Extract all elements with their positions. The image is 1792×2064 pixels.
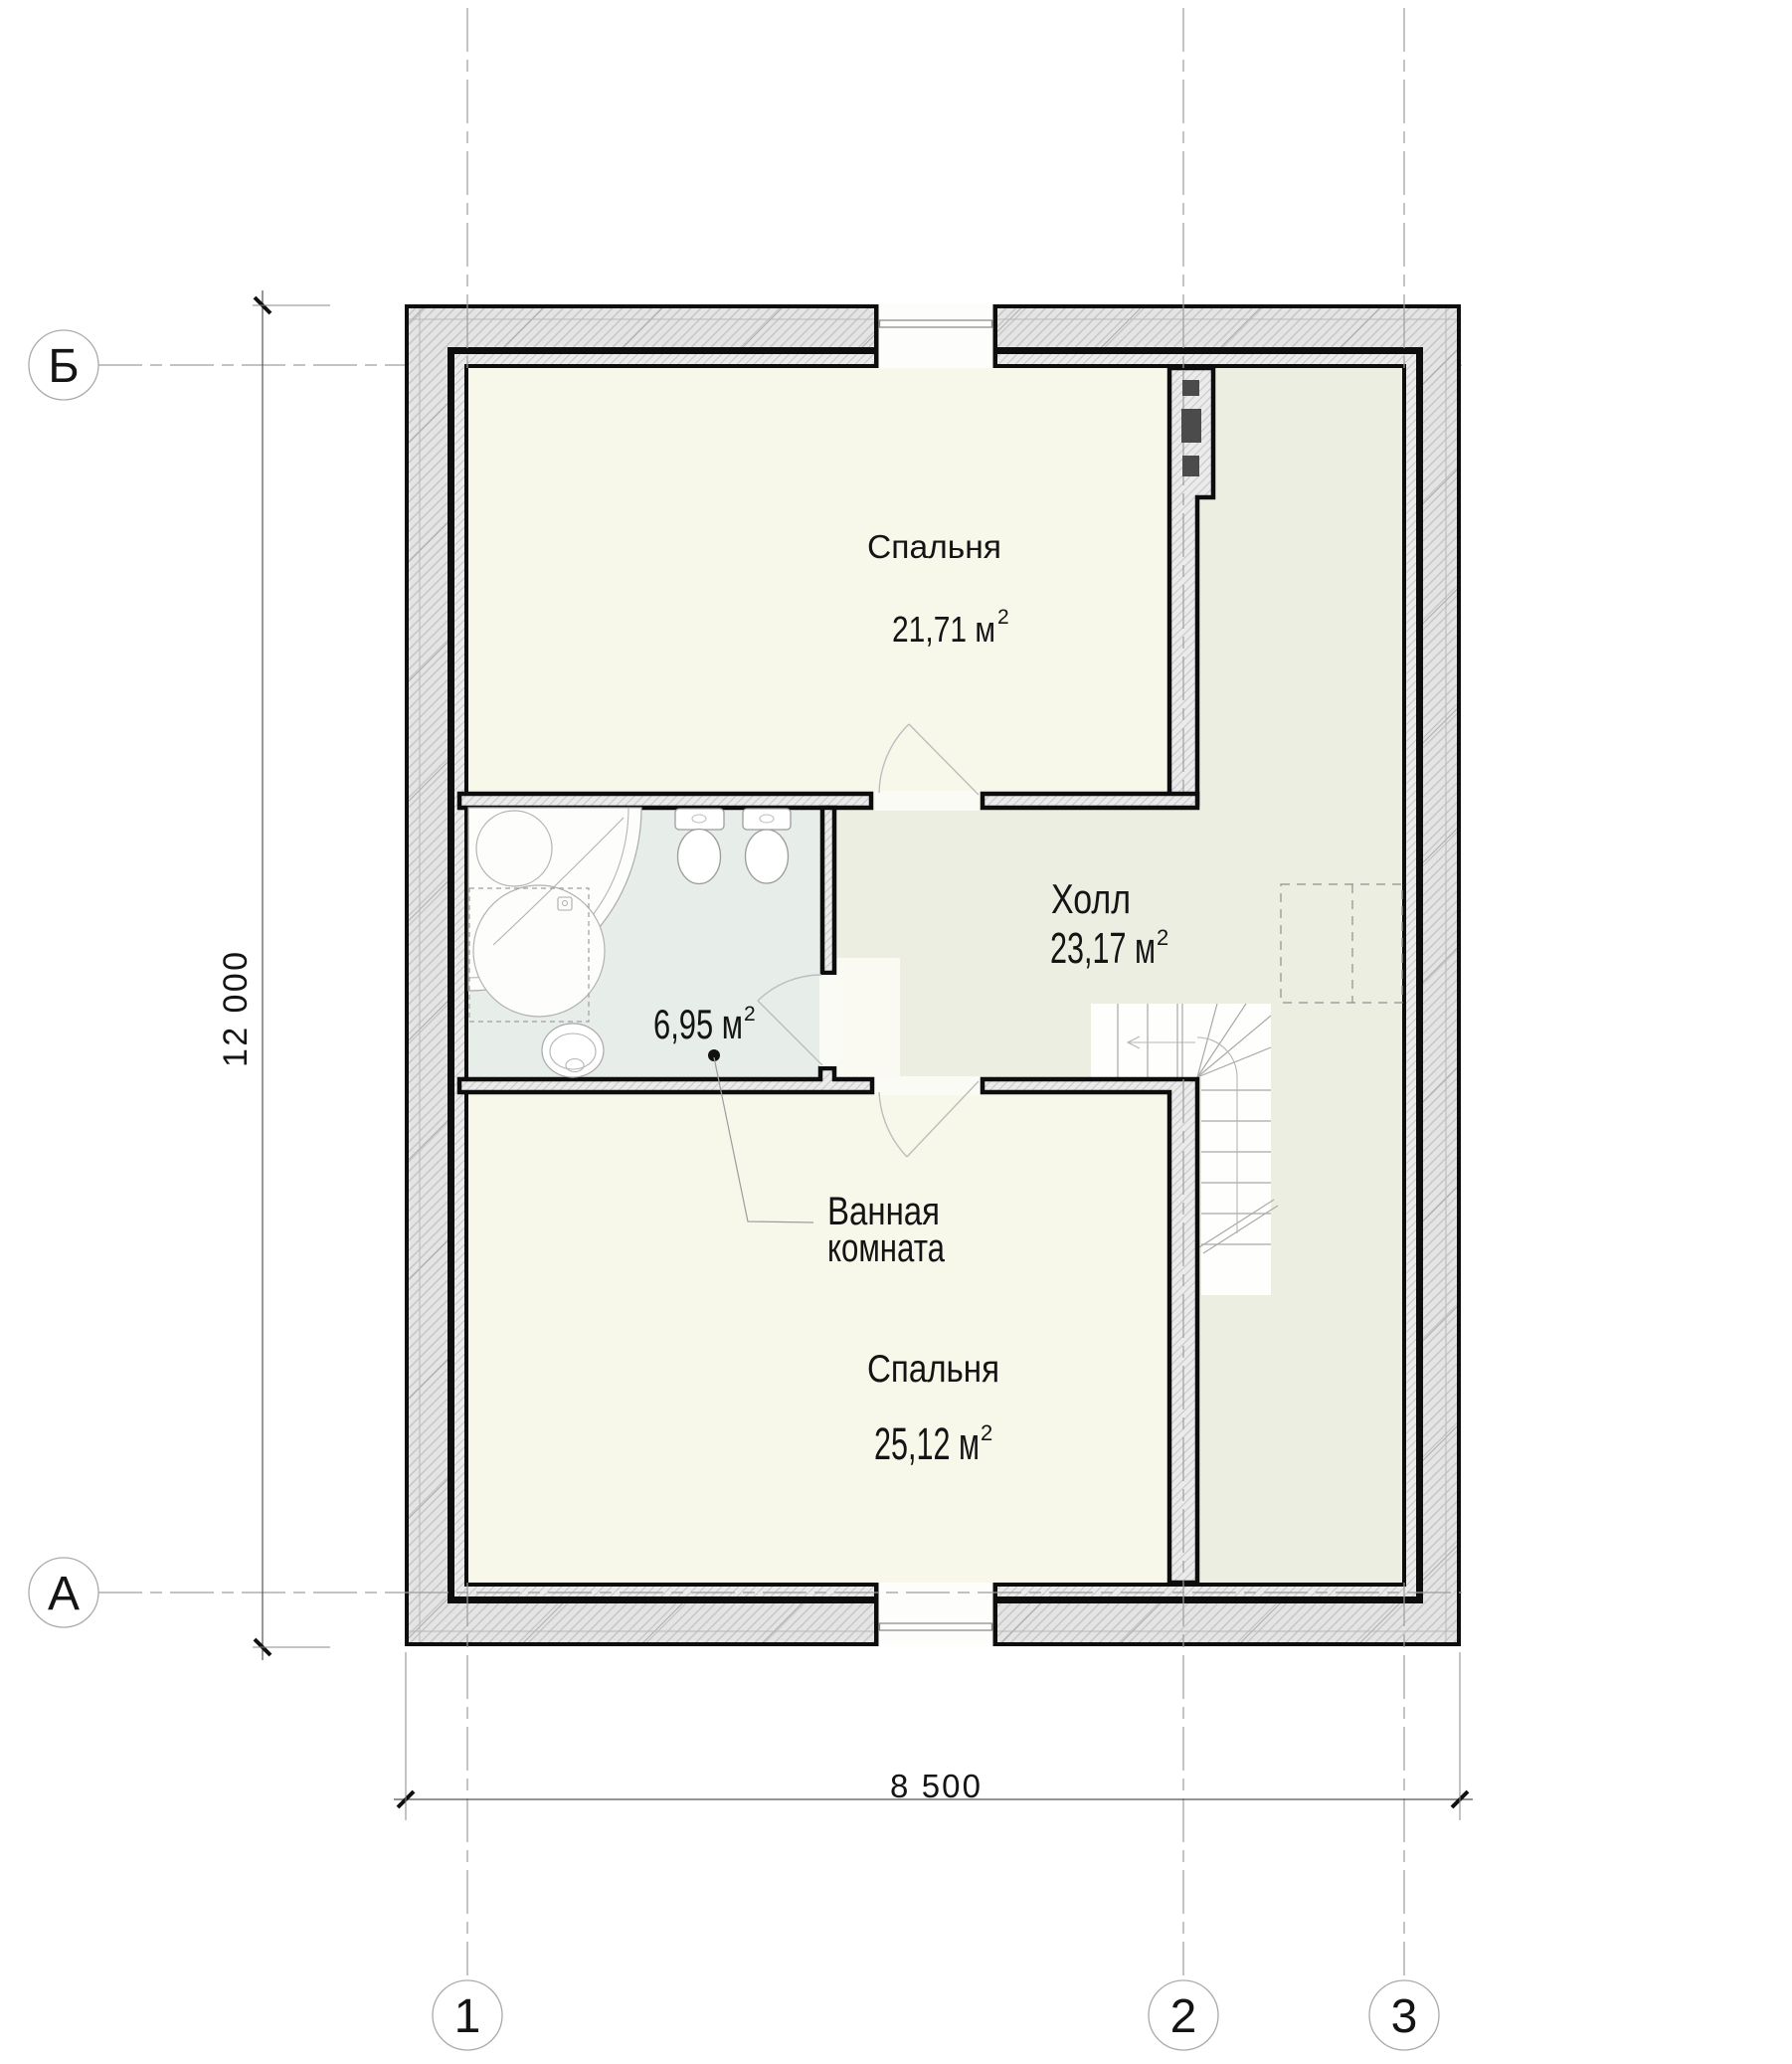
svg-text:6,95 м: 6,95 м — [653, 1001, 743, 1047]
svg-text:2: 2 — [1157, 925, 1168, 950]
svg-text:25,12 м: 25,12 м — [874, 1418, 980, 1469]
svg-text:3: 3 — [1391, 1990, 1418, 2043]
svg-text:8 500: 8 500 — [890, 1768, 981, 1804]
svg-text:1: 1 — [454, 1990, 481, 2043]
svg-text:23,17 м: 23,17 м — [1050, 924, 1156, 973]
svg-text:21,71 м: 21,71 м — [892, 609, 995, 650]
svg-text:Холл: Холл — [1051, 875, 1131, 922]
svg-text:2: 2 — [981, 1420, 992, 1445]
svg-text:2: 2 — [744, 1003, 756, 1026]
svg-text:2: 2 — [997, 606, 1009, 629]
svg-text:2: 2 — [1170, 1990, 1197, 2043]
svg-text:Б: Б — [48, 340, 80, 393]
svg-text:А: А — [48, 1568, 80, 1620]
svg-text:Спальня: Спальня — [867, 528, 1001, 565]
svg-text:Спальня: Спальня — [867, 1348, 999, 1391]
svg-text:комната: комната — [827, 1226, 946, 1270]
svg-text:12 000: 12 000 — [217, 952, 255, 1067]
